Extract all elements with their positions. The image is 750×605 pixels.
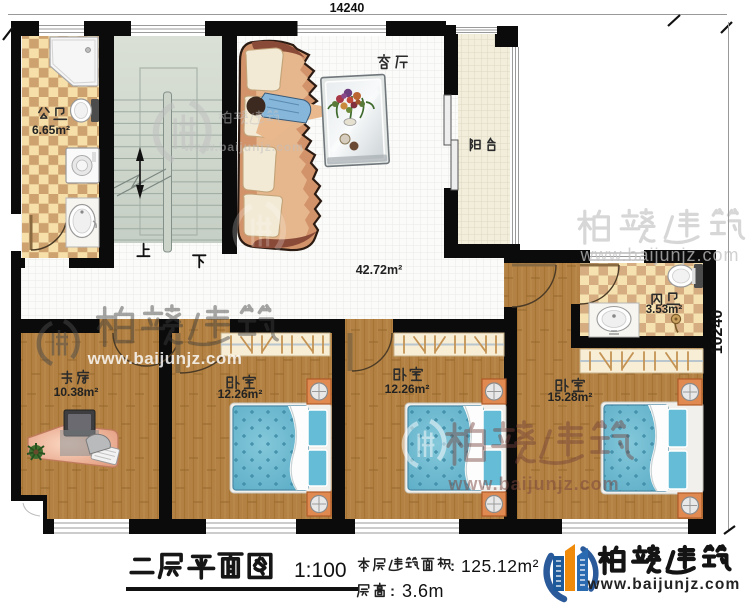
- svg-text:www.baijunjz.com: www.baijunjz.com: [183, 140, 304, 154]
- svg-text:3.53m²: 3.53m²: [646, 304, 683, 316]
- svg-text:www.baijunjz.com: www.baijunjz.com: [87, 349, 243, 368]
- svg-text:12.26m²: 12.26m²: [385, 382, 430, 396]
- svg-text:125.12m²: 125.12m²: [461, 556, 539, 576]
- svg-text:12.26m²: 12.26m²: [218, 387, 263, 401]
- svg-text:www.baijunjz.com: www.baijunjz.com: [587, 576, 741, 593]
- svg-text::: :: [390, 583, 395, 600]
- svg-text:10.38m²: 10.38m²: [54, 385, 99, 399]
- svg-text:42.72m²: 42.72m²: [356, 263, 403, 277]
- svg-text::: :: [450, 558, 455, 575]
- svg-text:15.28m²: 15.28m²: [548, 390, 593, 404]
- svg-text:10240: 10240: [709, 310, 726, 355]
- svg-text:1:100: 1:100: [294, 559, 347, 582]
- svg-text:www.baijunjz.com: www.baijunjz.com: [579, 245, 739, 265]
- svg-text:www.baijunjz.com: www.baijunjz.com: [447, 474, 619, 494]
- svg-text:14240: 14240: [330, 1, 365, 15]
- svg-text:6.65m²: 6.65m²: [32, 123, 70, 137]
- svg-text:3.6m: 3.6m: [402, 581, 444, 601]
